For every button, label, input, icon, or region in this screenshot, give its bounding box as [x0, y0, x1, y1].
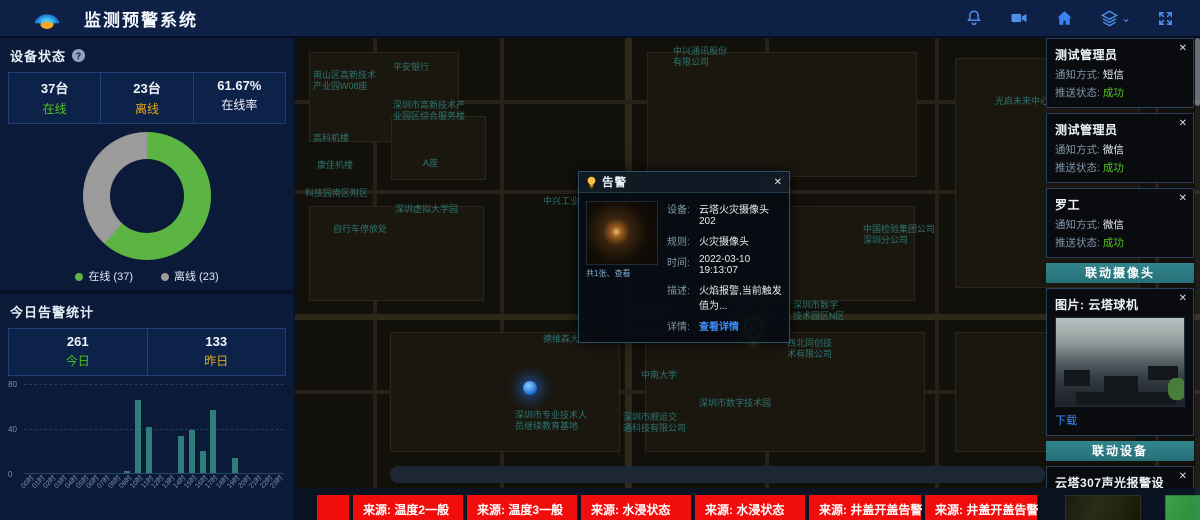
map-label: 深圳市顺运交 通科技有限公司 [623, 412, 686, 434]
notify-recipient: 罗工 [1055, 196, 1173, 213]
bell-icon[interactable] [965, 9, 983, 27]
online-count-cell: 37台 在线 [9, 73, 100, 123]
photo-detail [1064, 370, 1090, 386]
yesterday-count-cell: 133 昨日 [147, 329, 286, 375]
video-camera-icon[interactable] [1009, 9, 1029, 27]
right-panel-scrollbar[interactable] [1195, 38, 1200, 520]
bar-value [135, 400, 141, 473]
bar-15时: 15时 [186, 384, 197, 473]
alarm-ticker-item[interactable]: 来源: 水浸状态 [581, 495, 691, 520]
field-label: 设备: [667, 201, 699, 227]
bar-04时: 04时 [67, 384, 78, 473]
bar-14时: 14时 [176, 384, 187, 473]
map-block [390, 332, 620, 452]
top-header: 监测预警系统 ⌄ [0, 0, 1200, 38]
legend-online: 在线 (37) [75, 268, 133, 284]
online-label: 在线 [9, 100, 100, 117]
bar-chart-plot: 00时01时02时03时04时05时06时07时08时09时10时11时12时1… [24, 384, 284, 474]
map-avenue-road [390, 466, 1045, 483]
header-icon-group: ⌄ [965, 9, 1174, 28]
row-label: 通知方式: [1055, 144, 1100, 156]
thumbnail-caption[interactable]: 共1张、查看 [586, 268, 658, 279]
close-icon[interactable]: ✕ [1179, 293, 1187, 304]
map-label: 科技园南区附区 [305, 188, 368, 199]
bar-21时: 21时 [251, 384, 262, 473]
camera-snapshot-image[interactable] [1055, 317, 1185, 407]
field-label: 详情: [667, 318, 699, 333]
bar-value [200, 451, 206, 474]
device-status-stats: 37台 在线 23台 离线 61.67% 在线率 [8, 72, 286, 124]
linked-camera-header[interactable]: 联动摄像头 [1046, 263, 1194, 283]
online-rate-label: 在线率 [194, 96, 285, 113]
bar-value [178, 436, 184, 473]
map-label: 康佳机楼 [317, 160, 353, 171]
bar-19时: 19时 [230, 384, 241, 473]
map-label: 中国检验集团公司 深圳分公司 [863, 224, 935, 246]
close-icon[interactable]: ✕ [1179, 43, 1187, 54]
map-label: 自行车停放处 [333, 224, 387, 235]
fire-snapshot-thumbnail[interactable] [586, 201, 658, 265]
alarm-ticker-item[interactable]: 来源: 井盖开盖告警 [925, 495, 1037, 520]
donut-hole [110, 159, 184, 233]
map-road [935, 38, 939, 520]
view-details-link[interactable]: 查看详情 [699, 318, 739, 333]
alarm-ticker-item[interactable]: 来源: 温度3一般 [467, 495, 577, 520]
bar-13时: 13时 [165, 384, 176, 473]
page-title: 监测预警系统 [84, 6, 198, 31]
notify-recipient: 测试管理员 [1055, 121, 1173, 138]
bar-11时: 11时 [143, 384, 154, 473]
notify-method: 微信 [1103, 144, 1124, 156]
legend-offline-dot [161, 273, 169, 281]
alarm-bulb-icon [586, 176, 597, 189]
donut-legend: 在线 (37) 离线 (23) [0, 268, 294, 284]
push-status: 成功 [1103, 87, 1124, 99]
close-icon[interactable]: ✕ [774, 177, 782, 188]
rule-value: 火灾摄像头 [699, 233, 749, 248]
bar-10时: 10时 [132, 384, 143, 473]
download-link[interactable]: 下载 [1055, 412, 1185, 428]
bar-22时: 22时 [262, 384, 273, 473]
legend-offline-label: 离线 (23) [174, 271, 219, 283]
online-rate-cell: 61.67% 在线率 [193, 73, 285, 123]
bar-08时: 08时 [111, 384, 122, 473]
bar-value [189, 430, 195, 473]
map-block [645, 332, 925, 452]
notification-card: ✕ 测试管理员 通知方式:短信 推送状态:成功 [1046, 38, 1194, 108]
bar-16时: 16时 [197, 384, 208, 473]
bar-06时: 06时 [89, 384, 100, 473]
scrollbar-thumb[interactable] [1195, 38, 1200, 106]
photo-detail [1076, 392, 1176, 404]
legend-online-dot [75, 273, 83, 281]
bar-01时: 01时 [35, 384, 46, 473]
alarm-ticker: 来源: 温度2一般 来源: 温度3一般 来源: 水浸状态 来源: 水浸状态 来源… [295, 488, 1200, 520]
bar-18时: 18时 [219, 384, 230, 473]
alarm-ticker-item[interactable]: 来源: 井盖开盖告警 [809, 495, 921, 520]
online-count: 37台 [9, 78, 100, 97]
map-label: 南山区高新技术 产业园W08座 [313, 70, 376, 92]
row-label: 通知方式: [1055, 69, 1100, 81]
bar-12时: 12时 [154, 384, 165, 473]
today-alarm-title: 今日告警统计 [10, 302, 94, 321]
bar-20时: 20时 [241, 384, 252, 473]
close-icon[interactable]: ✕ [1179, 193, 1187, 204]
bar-value [146, 427, 152, 473]
map-label: 深圳市数字技术园 [699, 398, 771, 409]
alarm-popup: 告警 ✕ 共1张、查看 设备:云塔火灾摄像头202 规则:火灾摄像头 时间:20… [578, 171, 790, 343]
alarm-ticker-item[interactable]: 来源: 温度2一般 [353, 495, 463, 520]
field-label: 规则: [667, 233, 699, 248]
bar-07时: 07时 [100, 384, 111, 473]
app-logo-icon [32, 3, 62, 33]
bar-23时: 23时 [273, 384, 284, 473]
map-label: 深圳市数字 技术园区N区 [793, 300, 845, 322]
help-icon[interactable]: ? [72, 49, 85, 62]
map-block [391, 116, 486, 180]
ticker-video-thumbnail[interactable] [1065, 495, 1141, 520]
alarm-popup-body: 共1张、查看 设备:云塔火灾摄像头202 规则:火灾摄像头 时间:2022-03… [579, 193, 789, 342]
y-tick-40: 40 [8, 425, 17, 434]
offline-label: 离线 [101, 100, 192, 117]
bar-02时: 02时 [46, 384, 57, 473]
map-label: 西北同创技 术有限公司 [787, 338, 832, 360]
alarm-ticker-item[interactable]: 来源: 水浸状态 [695, 495, 805, 520]
layers-icon[interactable]: ⌄ [1100, 9, 1131, 28]
device-name-value: 云塔火灾摄像头202 [699, 201, 782, 227]
today-alarm-stats: 261 今日 133 昨日 [8, 328, 286, 376]
device-status-section: 设备状态 ? 37台 在线 23台 离线 61.67% 在线率 在线 (37) [0, 38, 294, 284]
linked-device-header[interactable]: 联动设备 [1046, 441, 1194, 461]
y-tick-80: 80 [8, 380, 17, 389]
y-tick-0: 0 [8, 470, 12, 479]
camera-card-title: 图片: 云塔球机 [1055, 296, 1173, 313]
device-status-title: 设备状态 [10, 46, 66, 65]
fullscreen-icon[interactable] [1157, 10, 1174, 27]
close-icon[interactable]: ✕ [1179, 471, 1187, 482]
map-block [309, 206, 484, 301]
legend-offline: 离线 (23) [161, 268, 219, 284]
bar-05时: 05时 [78, 384, 89, 473]
bar-00时: 00时 [24, 384, 35, 473]
left-stats-panel: 设备状态 ? 37台 在线 23台 离线 61.67% 在线率 在线 (37) [0, 38, 295, 520]
yesterday-label: 昨日 [148, 352, 286, 369]
device-location-marker[interactable] [523, 381, 537, 395]
notify-method: 短信 [1103, 69, 1124, 81]
bar-value [232, 458, 238, 473]
alarm-popup-title: 告警 [602, 174, 627, 190]
row-label: 推送状态: [1055, 87, 1100, 99]
push-status: 成功 [1103, 162, 1124, 174]
offline-count: 23台 [101, 78, 192, 97]
row-label: 推送状态: [1055, 237, 1100, 249]
bar-09时: 09时 [121, 384, 132, 473]
today-alarm-section: 今日告警统计 261 今日 133 昨日 80 40 0 00时01时02时03… [0, 294, 294, 520]
home-icon[interactable] [1055, 9, 1074, 27]
description-value: 火焰报警,当前触发值为... [699, 282, 782, 312]
legend-online-label: 在线 (37) [88, 271, 133, 283]
yesterday-count: 133 [148, 334, 286, 349]
today-label: 今日 [9, 352, 147, 369]
linked-device-card: ✕ 云塔307声光报警设备 设备编码:ffffff100001ab6c 调用服务… [1046, 466, 1194, 490]
field-label: 描述: [667, 282, 699, 312]
alarm-popup-header: 告警 ✕ [579, 172, 789, 193]
camera-snapshot-card: ✕ 图片: 云塔球机 下载 [1046, 288, 1194, 436]
alarm-ticker-item[interactable] [317, 495, 349, 520]
push-status: 成功 [1103, 237, 1124, 249]
chevron-down-icon: ⌄ [1121, 11, 1131, 25]
alarm-popup-fields: 设备:云塔火灾摄像头202 规则:火灾摄像头 时间:2022-03-10 19:… [667, 201, 782, 333]
map-label: 中兴通讯股份 有限公司 [673, 46, 727, 68]
close-icon[interactable]: ✕ [1179, 118, 1187, 129]
time-value: 2022-03-10 19:13:07 [699, 254, 782, 276]
right-notification-panel: ✕ 测试管理员 通知方式:短信 推送状态:成功 ✕ 测试管理员 通知方式:微信 … [1046, 38, 1194, 490]
today-count-cell: 261 今日 [9, 329, 147, 375]
row-label: 通知方式: [1055, 219, 1100, 231]
map-label: 平安银行 [393, 62, 429, 73]
today-count: 261 [9, 334, 147, 349]
hourly-alarm-bar-chart: 80 40 0 00时01时02时03时04时05时06时07时08时09时10… [6, 380, 288, 502]
bar-17时: 17时 [208, 384, 219, 473]
map-block [647, 52, 917, 177]
device-donut-chart [83, 132, 211, 260]
field-label: 时间: [667, 254, 699, 276]
notification-card: ✕ 罗工 通知方式:微信 推送状态:成功 [1046, 188, 1194, 258]
map-label: 深圳市专业技术人 员继续教育基地 [515, 410, 587, 432]
notify-method: 微信 [1103, 219, 1124, 231]
map-label: 中南大学 [641, 370, 677, 381]
photo-detail [1168, 378, 1185, 400]
map-label: 深圳市高新技术产 业园区综合服务楼 [393, 100, 465, 122]
bar-value [210, 410, 216, 473]
map-label: A座 [423, 158, 438, 169]
offline-count-cell: 23台 离线 [100, 73, 192, 123]
online-rate: 61.67% [194, 78, 285, 93]
notification-card: ✕ 测试管理员 通知方式:微信 推送状态:成功 [1046, 113, 1194, 183]
map-label: 深圳虚拟大学园 [395, 204, 458, 215]
notify-recipient: 测试管理员 [1055, 46, 1173, 63]
row-label: 推送状态: [1055, 162, 1100, 174]
bar-series: 00时01时02时03时04时05时06时07时08时09时10时11时12时1… [24, 384, 284, 473]
map-label: 高科机楼 [313, 133, 349, 144]
bar-03时: 03时 [56, 384, 67, 473]
